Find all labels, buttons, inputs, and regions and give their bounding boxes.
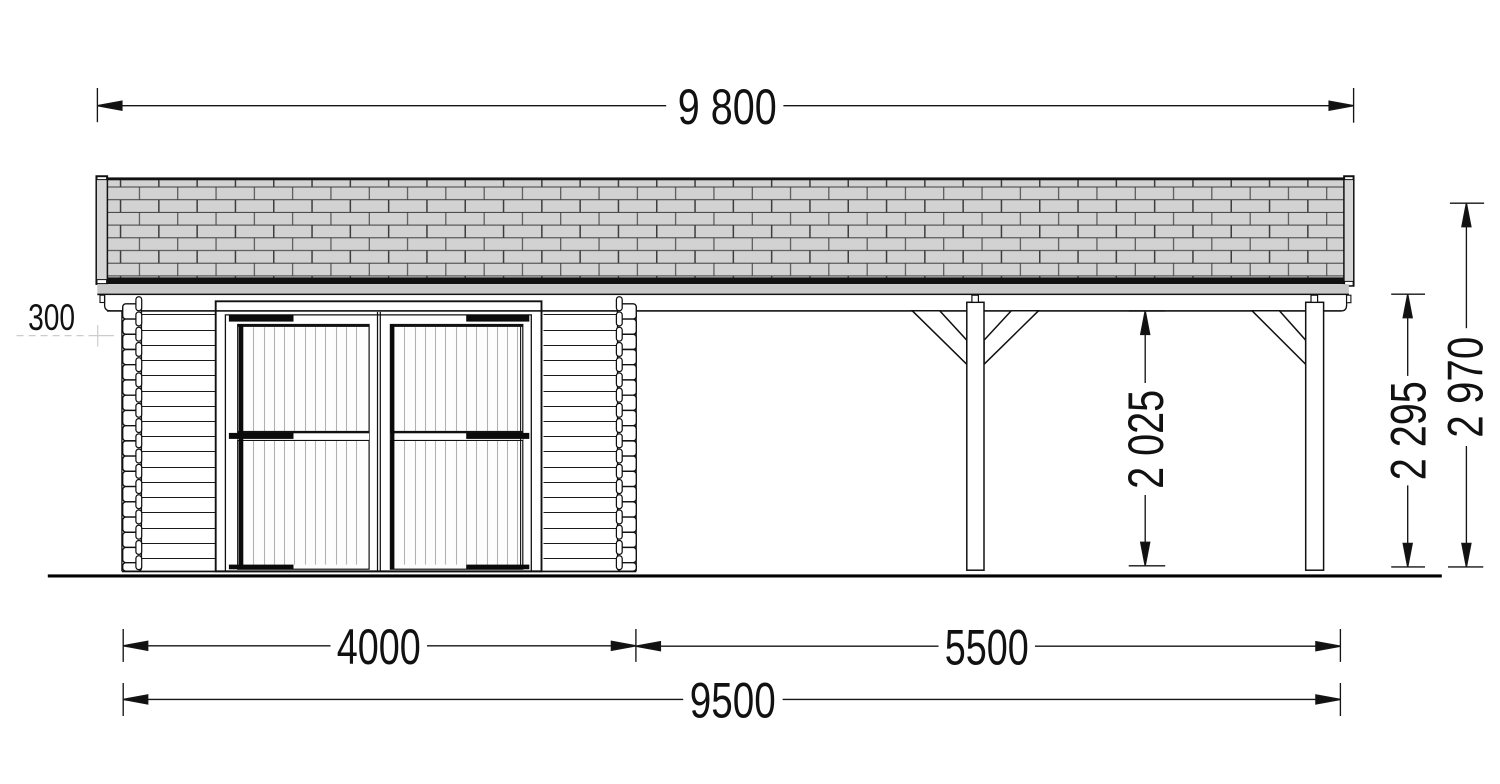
svg-text:2 025: 2 025	[1118, 390, 1174, 489]
svg-text:300: 300	[28, 297, 75, 338]
svg-text:2 970: 2 970	[1438, 337, 1494, 438]
svg-text:4000: 4000	[337, 619, 421, 675]
svg-text:9 800: 9 800	[678, 79, 777, 135]
svg-text:2 295: 2 295	[1381, 381, 1437, 480]
svg-text:5500: 5500	[945, 619, 1029, 675]
svg-text:9500: 9500	[690, 673, 776, 729]
